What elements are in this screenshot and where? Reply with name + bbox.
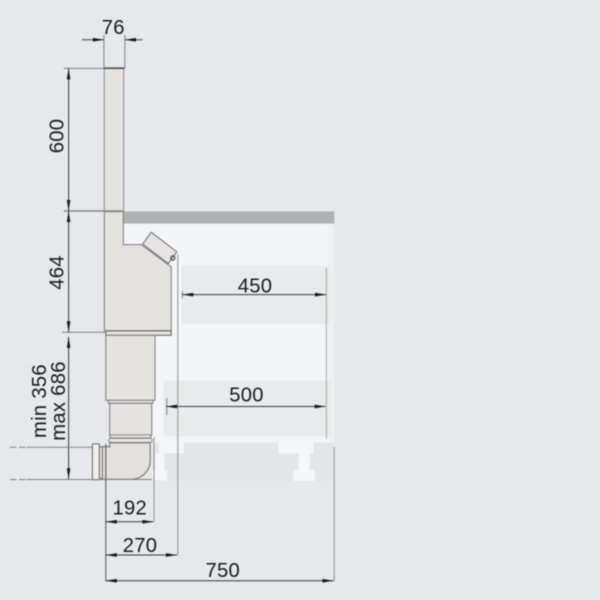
svg-text:max 686: max 686 <box>48 361 70 441</box>
svg-text:464: 464 <box>47 255 69 290</box>
svg-text:500: 500 <box>229 385 264 407</box>
svg-text:270: 270 <box>123 535 158 557</box>
svg-text:450: 450 <box>238 276 273 298</box>
svg-text:76: 76 <box>102 17 125 39</box>
svg-text:600: 600 <box>47 119 69 154</box>
svg-text:192: 192 <box>113 498 148 520</box>
svg-text:750: 750 <box>206 560 241 582</box>
